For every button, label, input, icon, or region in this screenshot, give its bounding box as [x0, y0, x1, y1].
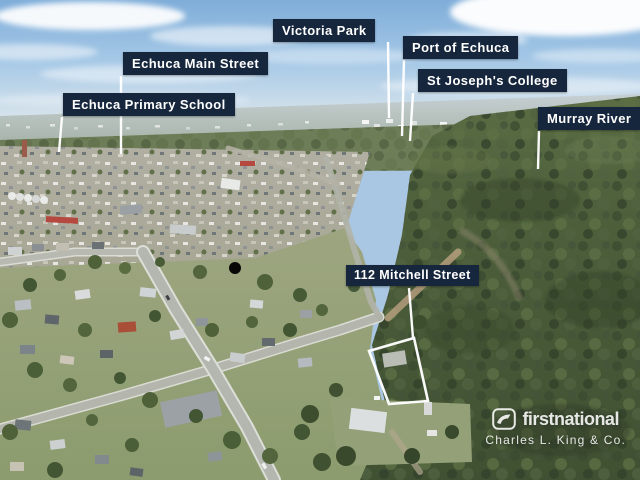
map-label-echuca-main-street: Echuca Main Street	[123, 52, 268, 75]
firstnational-logo-icon	[492, 408, 516, 430]
brand-name: firstnational	[522, 409, 619, 430]
agency-watermark: firstnational Charles L. King & Co.	[485, 408, 626, 447]
map-label-st-josephs-college: St Joseph's College	[418, 69, 567, 92]
map-label-victoria-park: Victoria Park	[273, 19, 375, 42]
aerial-photo: Victoria Park Port of Echuca St Joseph's…	[0, 0, 640, 480]
map-label-echuca-primary-school: Echuca Primary School	[63, 93, 235, 116]
map-label-port-of-echuca: Port of Echuca	[403, 36, 518, 59]
agency-name: Charles L. King & Co.	[485, 433, 626, 447]
map-label-murray-river: Murray River	[538, 107, 640, 130]
map-label-property-address: 112 Mitchell Street	[346, 265, 479, 286]
